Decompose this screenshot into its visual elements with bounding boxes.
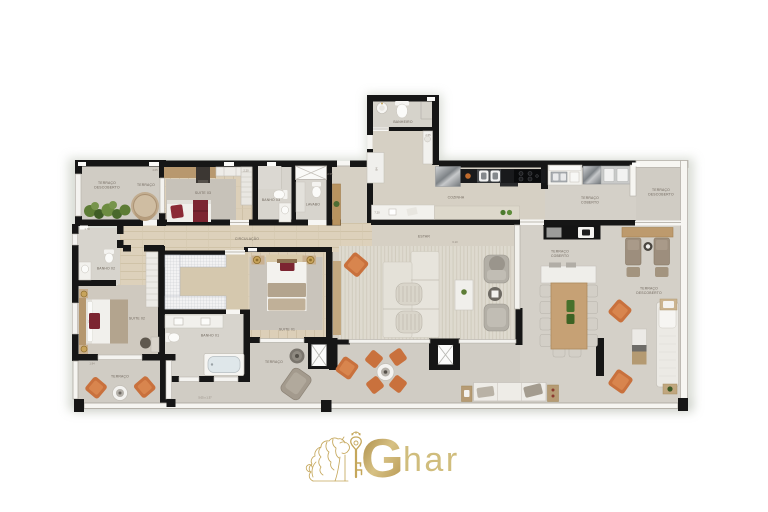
svg-text:SUITE 01: SUITE 01: [279, 328, 295, 332]
svg-text:1.70: 1.70: [84, 227, 90, 231]
svg-text:1.94: 1.94: [89, 362, 95, 366]
svg-text:DESCOBERTO: DESCOBERTO: [636, 291, 662, 295]
svg-text:BANHEIRO: BANHEIRO: [393, 120, 412, 124]
svg-text:TERRAÇO: TERRAÇO: [111, 375, 129, 379]
svg-text:har: har: [403, 441, 460, 479]
svg-text:G: G: [361, 427, 404, 489]
svg-text:5.05 x 1.37: 5.05 x 1.37: [198, 396, 212, 400]
svg-text:TERRAÇO: TERRAÇO: [98, 181, 116, 185]
svg-text:TERRAÇO: TERRAÇO: [652, 188, 670, 192]
svg-text:COBERTO: COBERTO: [551, 254, 569, 258]
svg-text:SUITE 03: SUITE 03: [195, 191, 211, 195]
svg-text:LAVABO: LAVABO: [306, 203, 320, 207]
svg-text:DESCOBERTO: DESCOBERTO: [94, 186, 120, 190]
svg-text:6.10: 6.10: [452, 240, 458, 244]
svg-text:COZINHA: COZINHA: [448, 196, 465, 200]
svg-text:DESCOBERTO: DESCOBERTO: [648, 193, 674, 197]
svg-text:SUITE 02: SUITE 02: [129, 317, 145, 321]
svg-text:TERRAÇO: TERRAÇO: [265, 360, 283, 364]
svg-text:7.20: 7.20: [374, 211, 380, 215]
svg-text:ESTAR: ESTAR: [418, 235, 430, 239]
svg-text:CIRCULAÇÃO: CIRCULAÇÃO: [235, 236, 259, 241]
svg-text:TERRAÇO: TERRAÇO: [137, 183, 155, 187]
svg-text:2.20: 2.20: [243, 169, 249, 173]
svg-text:4.05: 4.05: [152, 168, 158, 172]
svg-text:B4: B4: [375, 167, 379, 171]
svg-text:BANHO 01: BANHO 01: [201, 334, 219, 338]
svg-text:TERRAÇO: TERRAÇO: [551, 250, 569, 254]
svg-text:COBERTO: COBERTO: [581, 201, 599, 205]
svg-text:2.55: 2.55: [327, 172, 333, 176]
svg-text:BANHO 03: BANHO 03: [262, 198, 280, 202]
svg-text:2.55: 2.55: [425, 133, 431, 137]
svg-text:TERRAÇO: TERRAÇO: [581, 196, 599, 200]
svg-text:BANHO 02: BANHO 02: [97, 267, 115, 271]
svg-text:TERRAÇO: TERRAÇO: [640, 287, 658, 291]
